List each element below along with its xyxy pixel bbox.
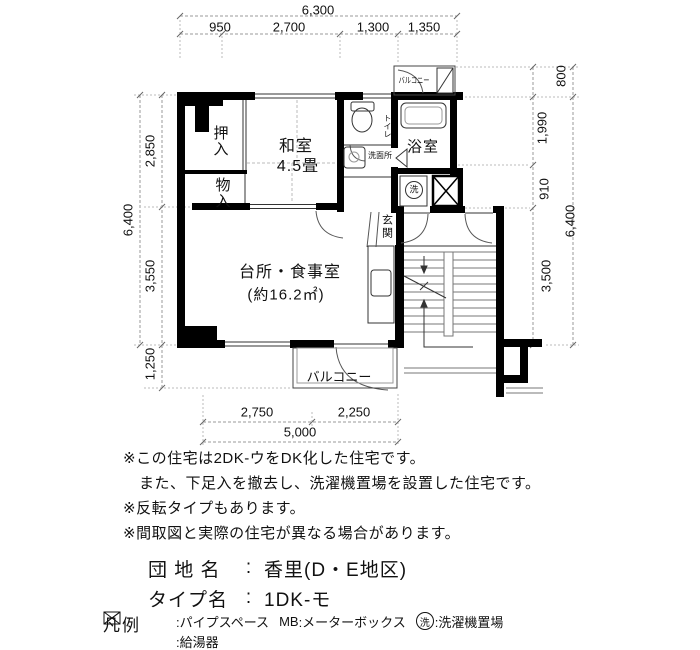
dim-left-segment-2: 3,550 bbox=[144, 260, 157, 293]
room-label-balcony-top: バルコニー bbox=[398, 77, 429, 85]
legend-pipe-space: :パイプスペース bbox=[176, 612, 269, 631]
note-line: ※この住宅は2DK-ウをDK化した住宅です。 bbox=[123, 446, 541, 471]
room-label-washroom: 洗面所 bbox=[368, 152, 392, 160]
legend-mb-value: :メーターボックス bbox=[299, 612, 406, 631]
dim-bottom-segment-1: 2,750 bbox=[241, 406, 274, 419]
danchi-row: 団 地 名 : 香里(D・E地区) bbox=[148, 553, 407, 583]
dim-right-segment-2: 910 bbox=[538, 178, 551, 200]
room-label-oshiire: 押入 bbox=[213, 125, 228, 157]
dim-bottom-total: 5,000 bbox=[284, 426, 317, 439]
dim-right-segment-1: 1,990 bbox=[536, 112, 549, 145]
dim-bottom-segment-2: 2,250 bbox=[338, 406, 371, 419]
laundry-circle-icon: 洗 bbox=[416, 612, 434, 630]
danchi-separator: : bbox=[234, 557, 264, 579]
room-size-washitsu: 4.5畳 bbox=[277, 159, 319, 175]
type-row: タイプ名 : 1DK-モ bbox=[148, 583, 407, 613]
room-label-monoire: 物入 bbox=[215, 177, 230, 209]
legend-mb-label: MB bbox=[279, 614, 299, 629]
floorplan-page: 6,300 950 2,700 1,300 1,350 6,400 2,850 … bbox=[0, 0, 700, 650]
room-label-dk: 台所・食事室 bbox=[239, 265, 341, 281]
dim-top-segment-2: 2,700 bbox=[273, 21, 306, 34]
note-line: ※反転タイプもあります。 bbox=[123, 496, 541, 521]
room-label-balcony-bottom: バルコニー bbox=[307, 371, 372, 384]
legend-row-1: :パイプスペース MB :メーターボックス 洗 :洗濯機置場 bbox=[175, 611, 503, 631]
dim-right-total: 6,400 bbox=[564, 205, 577, 238]
dim-left-balcony: 1,250 bbox=[144, 348, 157, 381]
legend-row-2: :給湯器 bbox=[175, 631, 503, 650]
legend-laundry: :洗濯機置場 bbox=[435, 612, 504, 631]
room-label-toilet: トイレ bbox=[383, 114, 391, 138]
dim-left-segment-1: 2,850 bbox=[144, 135, 157, 168]
type-name-value: 1DK-モ bbox=[264, 585, 331, 612]
dim-right-segment-3: 3,500 bbox=[540, 260, 553, 293]
note-line: ※間取図と実際の住宅が異なる場合があります。 bbox=[123, 521, 541, 546]
type-separator: : bbox=[234, 587, 264, 609]
room-label-washitsu: 和室 bbox=[279, 139, 313, 155]
dim-top-total: 6,300 bbox=[302, 4, 335, 17]
type-name-label: タイプ名 bbox=[148, 585, 234, 612]
room-label-genkan: 玄関 bbox=[381, 214, 392, 240]
dim-left-total: 6,400 bbox=[122, 204, 135, 237]
estate-info: 団 地 名 : 香里(D・E地区) タイプ名 : 1DK-モ bbox=[148, 553, 407, 613]
dim-top-segment-1: 950 bbox=[209, 21, 231, 34]
notes-block: ※この住宅は2DK-ウをDK化した住宅です。 また、下足入を撤去し、洗濯機置場を… bbox=[123, 446, 541, 546]
dim-right-800: 800 bbox=[555, 65, 568, 87]
danchi-name-value: 香里(D・E地区) bbox=[264, 555, 407, 582]
legend-heater: :給湯器 bbox=[176, 632, 219, 650]
danchi-name-label: 団 地 名 bbox=[148, 555, 234, 582]
room-label-bath: 浴室 bbox=[407, 140, 439, 155]
dim-top-segment-3: 1,300 bbox=[357, 21, 390, 34]
note-line: また、下足入を撤去し、洗濯機置場を設置した住宅です。 bbox=[123, 471, 541, 496]
dim-top-segment-4: 1,350 bbox=[408, 21, 441, 34]
laundry-place-mark: 洗 bbox=[409, 186, 418, 195]
legend: 凡例 :パイプスペース MB :メーターボックス 洗 :洗濯機置場 :給湯器 bbox=[103, 611, 503, 650]
room-area-dk: (約16.2㎡) bbox=[247, 288, 324, 303]
